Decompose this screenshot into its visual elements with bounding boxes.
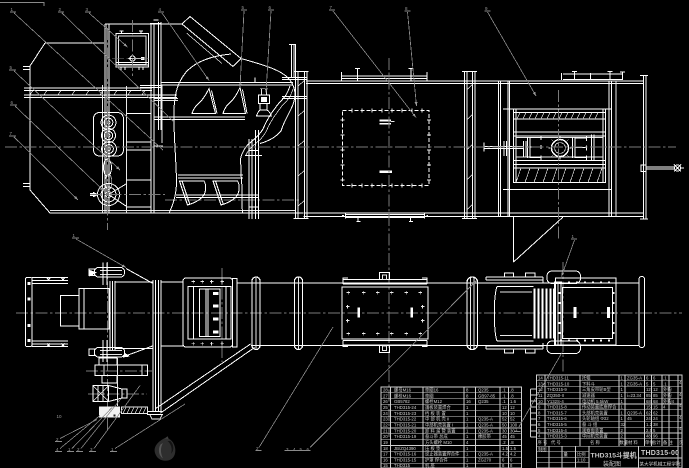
svg-text:16: 16 (383, 457, 388, 462)
svg-text:Q235-A: Q235-A (478, 417, 493, 422)
svg-text:THD315-6: THD315-6 (547, 416, 567, 421)
svg-text:ZG35-A: ZG35-A (627, 376, 642, 381)
svg-text:.2: .2 (502, 440, 506, 445)
svg-text:THD315斗提机: THD315斗提机 (591, 451, 637, 460)
svg-text:68: 68 (653, 399, 658, 404)
svg-text:1.5: 1.5 (510, 446, 517, 451)
svg-text:24: 24 (653, 416, 658, 421)
svg-text:THD315-20: THD315-20 (394, 428, 417, 433)
svg-text:52: 52 (510, 417, 515, 422)
svg-text:24: 24 (383, 411, 388, 416)
svg-text:.8: .8 (510, 440, 514, 445)
svg-text:THD315-11: THD315-11 (547, 376, 570, 381)
svg-text:.1: .1 (663, 376, 667, 381)
svg-text:橡胶带: 橡胶带 (478, 433, 492, 440)
svg-text:装配图: 装配图 (603, 460, 621, 468)
svg-text:16: 16 (466, 399, 471, 404)
svg-text:THD315-19: THD315-19 (394, 434, 417, 439)
svg-text:22: 22 (383, 422, 388, 427)
svg-text:THD315-22: THD315-22 (394, 417, 417, 422)
svg-text:96: 96 (653, 434, 658, 439)
svg-text:15: 15 (646, 405, 651, 410)
svg-text:19: 19 (383, 440, 388, 445)
svg-text:Q235-A: Q235-A (478, 452, 493, 457)
svg-text:28: 28 (383, 388, 388, 393)
svg-text:备 注: 备 注 (663, 439, 673, 446)
svg-text:14: 14 (538, 376, 543, 381)
svg-text:THD315-7: THD315-7 (547, 410, 567, 415)
svg-text:50: 50 (502, 422, 507, 427)
svg-text:制图: 制图 (538, 446, 547, 453)
svg-text:ZQ350-II: ZQ350-II (547, 393, 564, 398)
svg-text:机 座: 机 座 (425, 462, 435, 468)
svg-text:THD315-15: THD315-15 (394, 457, 417, 462)
svg-text:JB/ZQ4390: JB/ZQ4390 (394, 446, 416, 451)
svg-text:THD315-16: THD315-16 (394, 452, 417, 457)
svg-text:25: 25 (383, 405, 388, 410)
svg-text:12: 12 (646, 387, 651, 392)
svg-text:15: 15 (653, 405, 658, 410)
svg-text:THD315-21: THD315-21 (394, 422, 417, 427)
svg-text:10: 10 (502, 411, 507, 416)
svg-text:THD315-4: THD315-4 (547, 428, 567, 433)
svg-text:1.5: 1.5 (502, 446, 509, 451)
svg-text:总计: 总计 (652, 439, 661, 446)
svg-text:15: 15 (383, 463, 388, 468)
svg-text:62: 62 (653, 410, 658, 415)
svg-text:20: 20 (383, 434, 388, 439)
svg-text:序 号: 序 号 (538, 439, 548, 446)
svg-text:1.6: 1.6 (510, 399, 517, 404)
svg-text:Q235-A: Q235-A (478, 422, 493, 427)
svg-text:Q235-A: Q235-A (478, 428, 493, 433)
svg-text:THD315-3: THD315-3 (547, 434, 567, 439)
svg-text:Y132S-4: Y132S-4 (547, 399, 564, 404)
svg-text:2.5: 2.5 (646, 428, 653, 433)
svg-text:.1: .1 (663, 381, 667, 386)
svg-text:26: 26 (383, 399, 388, 404)
svg-text:THD315-9: THD315-9 (547, 387, 567, 392)
svg-text:.1: .1 (502, 399, 506, 404)
svg-text:GB97-85: GB97-85 (478, 393, 496, 398)
svg-text:10: 10 (57, 414, 63, 419)
svg-text:62: 62 (646, 410, 651, 415)
svg-text:Q235: Q235 (478, 388, 489, 393)
svg-text:.8: .8 (510, 393, 514, 398)
svg-text:45: 45 (510, 434, 515, 439)
svg-text:GB5782: GB5782 (394, 399, 410, 404)
svg-text:4.2: 4.2 (510, 452, 517, 457)
svg-text:量: 量 (564, 451, 569, 458)
svg-text:10: 10 (510, 411, 515, 416)
svg-text:38: 38 (653, 422, 658, 427)
svg-text:代 号: 代 号 (551, 439, 561, 446)
svg-text:11: 11 (538, 393, 543, 398)
svg-text:32: 32 (621, 422, 626, 427)
svg-text:中间机壳装置: 中间机壳装置 (582, 433, 608, 440)
svg-text:THD315-8: THD315-8 (547, 405, 567, 410)
svg-text:85: 85 (646, 393, 651, 398)
svg-text:.1: .1 (502, 393, 506, 398)
svg-text:.1: .1 (502, 388, 506, 393)
svg-text:12: 12 (653, 387, 658, 392)
svg-text:48: 48 (646, 434, 651, 439)
svg-text:THD315-00: THD315-00 (641, 450, 679, 457)
svg-text:68: 68 (646, 399, 651, 404)
svg-text:某大学机械工程学院: 某大学机械工程学院 (640, 461, 681, 468)
svg-text:85: 85 (653, 393, 658, 398)
svg-text:10: 10 (538, 399, 543, 404)
svg-text:THD315-5: THD315-5 (547, 422, 567, 427)
svg-text:ZG270: ZG270 (478, 457, 492, 462)
svg-text:THD315-10: THD315-10 (547, 381, 570, 386)
svg-text:45: 45 (502, 434, 507, 439)
svg-text:12: 12 (502, 405, 507, 410)
svg-text:ZG35-A: ZG35-A (627, 381, 642, 386)
svg-text:12: 12 (510, 405, 515, 410)
svg-text:1:10: 1:10 (577, 458, 586, 463)
svg-text:23: 23 (383, 417, 388, 422)
svg-text:THD315-24: THD315-24 (394, 405, 417, 410)
svg-text:52: 52 (502, 417, 507, 422)
svg-text:i=23.34: i=23.34 (627, 393, 642, 398)
svg-text:4.2: 4.2 (502, 452, 509, 457)
svg-text:1.2: 1.2 (646, 422, 653, 427)
svg-text:21: 21 (383, 428, 388, 433)
svg-text:27: 27 (383, 393, 388, 398)
svg-text:24: 24 (646, 416, 651, 421)
svg-text:Q235-A: Q235-A (627, 410, 642, 415)
svg-text:名 称: 名 称 (590, 439, 600, 446)
svg-text:17: 17 (383, 452, 388, 457)
svg-text:30: 30 (502, 428, 507, 433)
svg-text:Q235: Q235 (478, 399, 489, 404)
svg-text:THD315-23: THD315-23 (394, 411, 417, 416)
svg-text:.8: .8 (510, 388, 514, 393)
svg-text:THD315: THD315 (394, 463, 411, 468)
svg-text:45: 45 (627, 416, 632, 421)
svg-text:18: 18 (383, 446, 388, 451)
svg-text:材 料: 材 料 (628, 439, 638, 446)
